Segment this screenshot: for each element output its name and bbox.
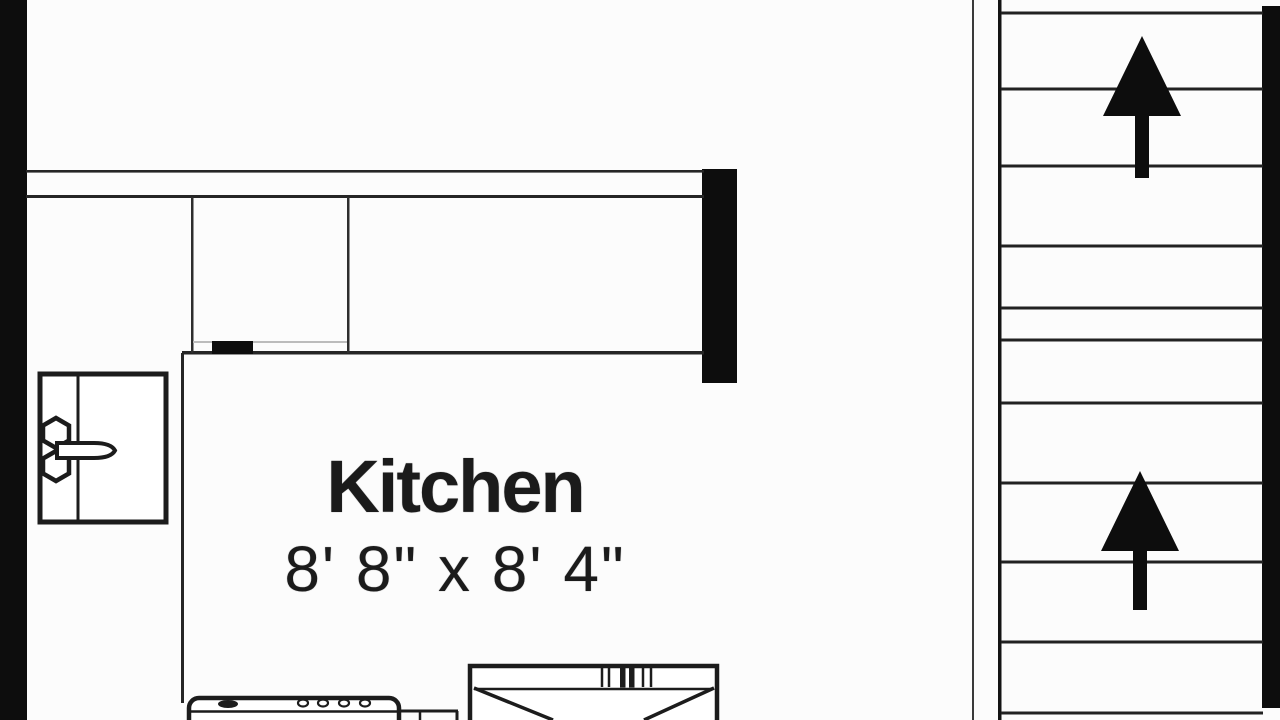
utility-sink-icon [40,374,166,522]
cabinet-bottom-edge [182,351,704,355]
staircase [972,0,1263,720]
room-name: Kitchen [155,450,755,524]
up-arrow-icon [1101,471,1179,610]
floor-plan: Kitchen 8' 8" x 8' 4" [0,0,1280,720]
counter-end-wall-column [702,169,737,383]
counter-back-edge [26,195,704,198]
room-dimensions: 8' 8" x 8' 4" [155,536,755,602]
left-exterior-wall [0,0,27,720]
stove-burner-knob-icon [339,700,349,707]
sink-body [470,666,717,720]
counter-front-edge [26,170,704,173]
stair-left-wall-inner [998,0,1002,720]
up-arrow-icon [1103,36,1181,178]
faucet-icon [620,668,626,688]
double-basin-sink-icon [470,666,717,720]
cabinet-divider-left [191,197,194,353]
stove-burner-knob-icon [318,700,328,707]
room-label: Kitchen 8' 8" x 8' 4" [155,450,755,602]
stove-knob-icon [218,700,238,708]
stair-right-wall [1262,6,1280,708]
stove-burner-knob-icon [298,700,308,707]
cabinet-handle-icon [212,341,253,354]
stove-burner-knob-icon [360,700,370,707]
cabinet-divider-right [347,197,350,353]
faucet-icon [629,668,635,688]
faucet-spout-icon [57,443,115,458]
floor-plan-drawing [0,0,1280,720]
counter-stub [399,711,458,720]
range-stove-icon [189,698,399,720]
stair-left-wall-outer [972,0,974,720]
